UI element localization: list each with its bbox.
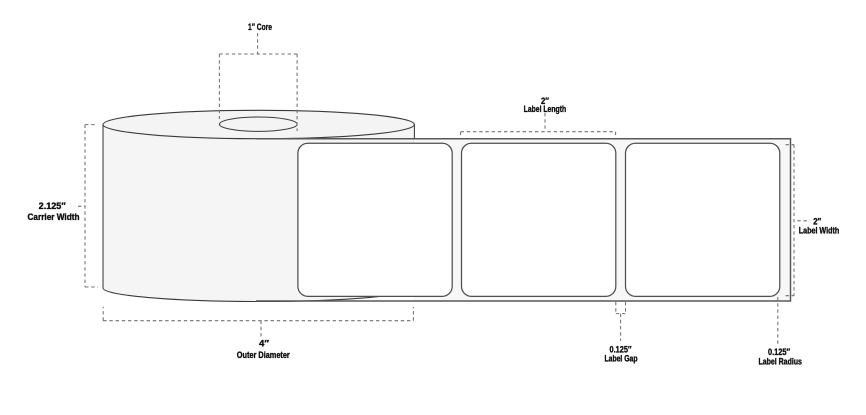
svg-text:1″ Core: 1″ Core (248, 22, 272, 32)
svg-text:4″: 4″ (259, 339, 270, 349)
svg-text:Label Radius: Label Radius (758, 356, 802, 366)
svg-text:Carrier Width: Carrier Width (28, 212, 80, 222)
svg-text:Label Width: Label Width (799, 226, 840, 236)
svg-text:Label Gap: Label Gap (605, 354, 638, 364)
svg-text:Label Length: Label Length (524, 104, 567, 114)
svg-text:Outer Diameter: Outer Diameter (237, 350, 290, 360)
svg-text:2.125″: 2.125″ (39, 201, 67, 211)
